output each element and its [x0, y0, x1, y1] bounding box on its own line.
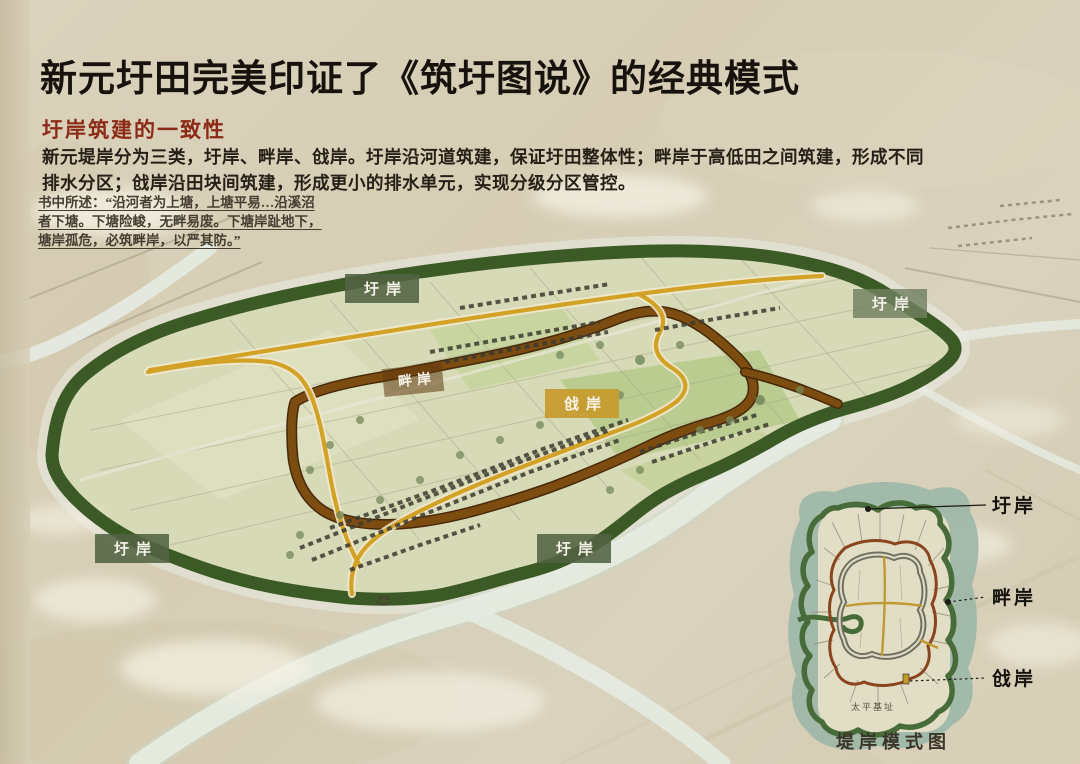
inset-legend-yuan: 圩岸	[992, 495, 1036, 517]
section-subtitle: 圩岸筑建的一致性	[42, 114, 226, 144]
book-quote-box: 书中所述：“沿河者为上塘，上塘平易…沿溪沼 者下塘。下塘险峻，无畔易废。下塘岸趾…	[38, 193, 338, 250]
map-label-yuan-bottom-mid: 圩岸	[537, 534, 611, 563]
page-title: 新元圩田完美印证了《筑圩图说》的经典模式	[40, 48, 920, 102]
body-line-1: 新元堤岸分为三类，圩岸、畔岸、戗岸。圩岸沿河道筑建，保证圩田整体性；畔岸于高低田…	[42, 144, 1052, 169]
sketch-village-topright	[948, 200, 1072, 246]
quote-line-2: 者下塘。下塘险峻，无畔易废。下塘岸趾地下，	[38, 214, 322, 229]
body-line-2: 排水分区；戗岸沿田块间筑建，形成更小的排水单元，实现分级分区管控。	[42, 170, 1052, 195]
slide-page: 太平基址 圩岸 畔岸 戗岸 堤岸模式图 新元圩田完美印证了《筑圩图说》的经典模式…	[0, 0, 1080, 764]
inset-site-label: 太平基址	[851, 701, 895, 712]
map-label-yuan-top-right: 圩岸	[853, 289, 927, 318]
quote-line-1: 书中所述：“沿河者为上塘，上塘平易…沿溪沼	[38, 195, 315, 210]
map-label-yuan-bottom-left: 圩岸	[95, 534, 169, 563]
inset-caption: 堤岸模式图	[836, 731, 951, 752]
inset-qiangan-marker	[903, 674, 909, 684]
quote-line-3: 塘岸孤危，必筑畔岸，以严其防。”	[38, 233, 241, 248]
inset-legend-panan: 畔岸	[992, 586, 1036, 609]
river-right-top	[952, 324, 1080, 338]
inset-legend-qiangan: 戗岸	[992, 667, 1036, 690]
map-label-yuan-top: 圩岸	[345, 274, 419, 303]
map-label-qiangan: 戗岸	[545, 389, 619, 418]
